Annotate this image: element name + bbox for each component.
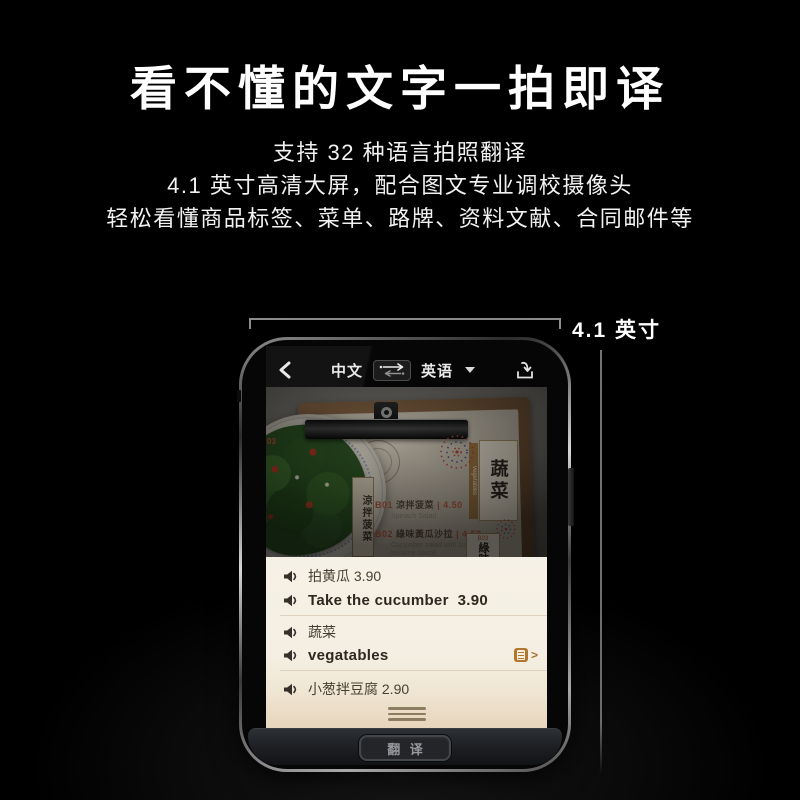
subtitle-line-2: 4.1 英寸高清大屏，配合图文专业调校摄像头 [0,169,800,202]
subtitle-line-3: 轻松看懂商品标签、菜单、路牌、资料文献、合同邮件等 [0,202,800,235]
subtitle-block: 支持 32 种语言拍照翻译 4.1 英寸高清大屏，配合图文专业调校摄像头 轻松看… [0,136,800,235]
swap-arrows-icon [378,363,406,377]
import-image-button[interactable] [514,360,536,381]
result-row-translation-2[interactable]: vegatables > [266,644,547,666]
dimension-tick-right [559,320,561,329]
menu-item-1-name: 涼拌菠菜 [396,500,434,510]
menu-item-1-english: Spinach Salad [391,513,483,521]
menu-item-3-box: B03 綠味 [466,533,500,557]
speaker-icon[interactable] [283,594,297,607]
menu-item-2-code: B02 [375,529,393,539]
category-box-vertical: 蔬菜 [479,440,518,521]
chevron-right-icon[interactable]: > [531,648,538,662]
chevron-left-icon [278,361,292,379]
subtitle-line-1: 支持 32 种语言拍照翻译 [0,136,800,169]
result-text: Take the cucumber 3.90 [308,592,488,609]
result-text: 蔬菜 [308,622,336,642]
translate-button[interactable]: 翻 译 [359,735,451,761]
result-text: vegatables [308,647,389,664]
phone-screen: 中文 英语 [242,340,568,769]
menu-item-2-name: 綠味黃瓜沙拉 [396,529,453,539]
source-language[interactable]: 中文 [331,360,363,381]
result-row-translation-1[interactable]: Take the cucumber 3.90 [266,589,547,611]
result-row-source-1[interactable]: 拍黄瓜 3.90 [266,565,547,587]
menu-item-3-name: 綠味 [475,542,491,557]
swap-languages-button[interactable] [373,360,411,381]
row-divider [280,670,547,671]
result-row-source-2[interactable]: 蔬菜 [266,621,547,643]
width-dimension-line [249,318,561,328]
back-button[interactable] [278,361,292,379]
language-selector: 中文 英语 [292,360,514,381]
page-title: 看不懂的文字一拍即译 [0,50,800,119]
result-row-source-3[interactable]: 小葱拌豆腐 2.90 [266,678,547,700]
drag-handle[interactable] [388,704,426,724]
menu-item-1-code: B01 [375,500,393,510]
firework-pattern-large [435,430,479,474]
phone-bottom-zone: 翻 译 [248,728,562,765]
side-notch [237,390,241,402]
result-text: 拍黄瓜 3.90 [308,566,381,586]
phone-device: 中文 英语 [239,337,571,772]
speaker-icon[interactable] [283,649,297,662]
caret-down-icon[interactable] [465,367,475,373]
dictionary-entry-icon[interactable] [514,648,528,662]
screen-size-label: 4.1 英寸 [572,314,661,344]
translation-top-bar: 中文 英语 [266,353,547,387]
entry-actions[interactable]: > [514,648,538,662]
speaker-icon[interactable] [283,626,297,639]
target-language[interactable]: 英语 [421,360,453,381]
speaker-icon[interactable] [283,570,297,583]
clip-hole [381,407,392,418]
camera-viewfinder: 涼拌菠菜 vegetables 蔬菜 03 B01 [266,387,547,557]
page: 看不懂的文字一拍即译 支持 32 种语言拍照翻译 4.1 英寸高清大屏，配合图文… [0,0,800,800]
dimension-tick-left [249,320,251,329]
menu-side-code: 03 [267,437,276,446]
power-button [568,468,574,526]
result-text: 小葱拌豆腐 2.90 [308,679,409,699]
speaker-icon[interactable] [283,683,297,696]
menu-item-1-price: | 4.50 [437,500,463,510]
import-tray-icon [514,360,536,381]
row-divider [280,615,547,616]
height-dimension-line [600,350,602,774]
menu-item-1: B01 涼拌菠菜 | 4.50 [375,498,483,511]
dish-label-vertical: 涼拌菠菜 [352,477,374,557]
translation-results-panel: 拍黄瓜 3.90 Take the cucumber 3.90 蔬菜 [266,557,547,728]
